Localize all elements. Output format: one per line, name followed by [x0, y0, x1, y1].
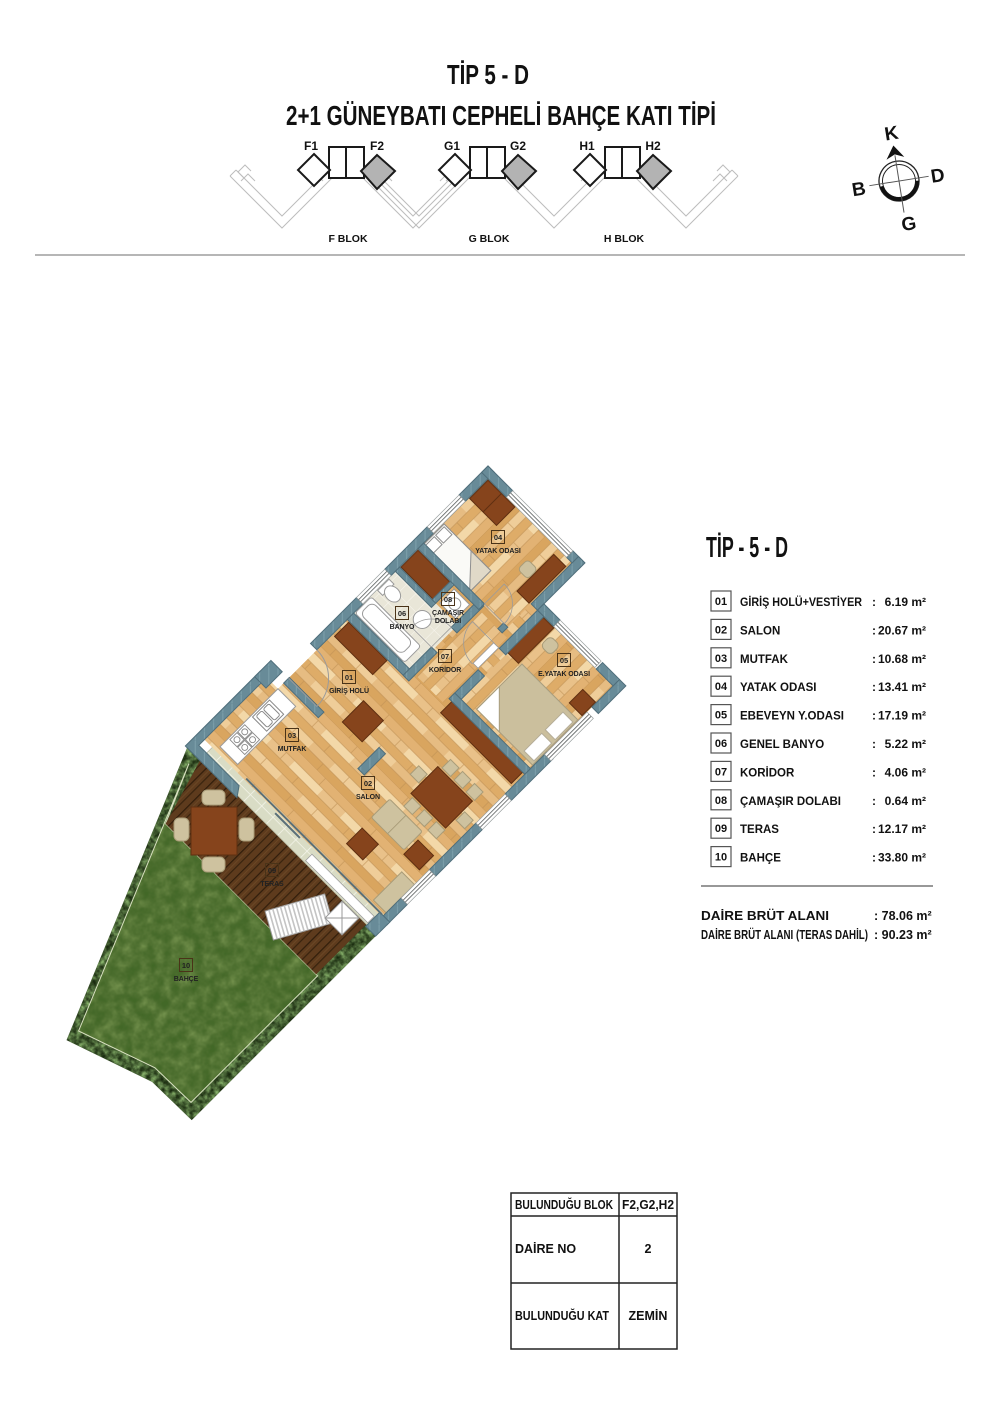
- svg-text::: :: [872, 822, 876, 836]
- svg-text:05: 05: [560, 656, 568, 665]
- svg-text:H2: H2: [645, 139, 661, 153]
- svg-text:08: 08: [715, 795, 727, 807]
- svg-text:SALON: SALON: [356, 794, 380, 801]
- svg-text::: :: [872, 765, 876, 779]
- svg-text:TİP 5 - D: TİP 5 - D: [447, 59, 529, 90]
- svg-text::: :: [872, 737, 876, 751]
- svg-text::: :: [872, 709, 876, 723]
- svg-text:MUTFAK: MUTFAK: [740, 654, 789, 666]
- svg-text:GİRİŞ HOLÜ: GİRİŞ HOLÜ: [329, 686, 369, 695]
- svg-text:6.19 m²: 6.19 m²: [885, 595, 926, 609]
- svg-text:4.06 m²: 4.06 m²: [885, 765, 926, 779]
- svg-text:DAİRE BRÜT ALANI: DAİRE BRÜT ALANI: [701, 908, 829, 923]
- svg-text:BAHÇE: BAHÇE: [740, 853, 781, 865]
- svg-text:: 78.06 m²: : 78.06 m²: [874, 909, 932, 923]
- svg-text:KORİDOR: KORİDOR: [740, 766, 795, 779]
- svg-text:DOLABI: DOLABI: [435, 618, 461, 625]
- svg-text:02: 02: [715, 624, 727, 636]
- svg-text::: :: [872, 851, 876, 865]
- svg-text:G BLOK: G BLOK: [469, 233, 510, 245]
- svg-text:01: 01: [345, 673, 353, 682]
- svg-text:04: 04: [715, 681, 728, 693]
- svg-text:BAHÇE: BAHÇE: [174, 976, 199, 983]
- svg-text:20.67 m²: 20.67 m²: [878, 623, 926, 637]
- svg-text:G1: G1: [444, 139, 460, 153]
- svg-text:2: 2: [645, 1242, 652, 1256]
- svg-text:01: 01: [715, 596, 727, 608]
- svg-text:07: 07: [715, 766, 727, 778]
- svg-text:08: 08: [444, 595, 452, 604]
- svg-text::: :: [872, 652, 876, 666]
- svg-text:TERAS: TERAS: [260, 881, 284, 888]
- svg-text::: :: [872, 794, 876, 808]
- svg-text:09: 09: [268, 866, 276, 875]
- svg-text:DAİRE BRÜT ALANI (TERAS DAHİL): DAİRE BRÜT ALANI (TERAS DAHİL): [701, 927, 868, 942]
- svg-text::: :: [872, 623, 876, 637]
- svg-text:F2,G2,H2: F2,G2,H2: [622, 1198, 674, 1212]
- svg-text:02: 02: [364, 779, 372, 788]
- svg-text:12.17 m²: 12.17 m²: [878, 822, 926, 836]
- svg-text:BULUNDUĞU KAT: BULUNDUĞU KAT: [515, 1308, 609, 1323]
- svg-text:H1: H1: [579, 139, 595, 153]
- svg-text:ÇAMAŞIR: ÇAMAŞIR: [432, 610, 464, 617]
- svg-text:10: 10: [715, 852, 727, 864]
- svg-text:H BLOK: H BLOK: [604, 233, 645, 245]
- svg-text:33.80 m²: 33.80 m²: [878, 851, 926, 865]
- svg-text::: :: [872, 680, 876, 694]
- svg-text:GENEL BANYO: GENEL BANYO: [740, 739, 824, 751]
- svg-text:F1: F1: [304, 139, 318, 153]
- svg-text:07: 07: [441, 652, 449, 661]
- svg-text:17.19 m²: 17.19 m²: [878, 709, 926, 723]
- svg-text:06: 06: [398, 609, 406, 618]
- svg-text:G2: G2: [510, 139, 526, 153]
- svg-text:TERAS: TERAS: [740, 824, 779, 836]
- svg-text:ÇAMAŞIR DOLABI: ÇAMAŞIR DOLABI: [740, 796, 841, 808]
- svg-text:YATAK ODASI: YATAK ODASI: [475, 548, 521, 555]
- svg-text:10: 10: [182, 961, 190, 970]
- svg-text:13.41 m²: 13.41 m²: [878, 680, 926, 694]
- svg-text::: :: [872, 595, 876, 609]
- svg-text:03: 03: [288, 731, 296, 740]
- svg-text:ZEMİN: ZEMİN: [629, 1308, 668, 1323]
- svg-text:03: 03: [715, 653, 727, 665]
- svg-text:SALON: SALON: [740, 625, 780, 637]
- svg-text:YATAK ODASI: YATAK ODASI: [740, 682, 816, 694]
- svg-text:TİP - 5 - D: TİP - 5 - D: [706, 532, 788, 564]
- svg-text:BANYO: BANYO: [390, 624, 415, 631]
- svg-text:DAİRE NO: DAİRE NO: [515, 1241, 576, 1256]
- svg-text:10.68 m²: 10.68 m²: [878, 652, 926, 666]
- svg-text:BULUNDUĞU BLOK: BULUNDUĞU BLOK: [515, 1197, 613, 1212]
- svg-text:5.22 m²: 5.22 m²: [885, 737, 926, 751]
- svg-text:: 90.23 m²: : 90.23 m²: [874, 928, 932, 942]
- svg-text:09: 09: [715, 823, 727, 835]
- svg-text:2+1 GÜNEYBATI CEPHELİ BAHÇE KA: 2+1 GÜNEYBATI CEPHELİ BAHÇE KATI TİPİ: [286, 100, 716, 131]
- svg-text:F BLOK: F BLOK: [328, 233, 367, 245]
- svg-text:05: 05: [715, 710, 727, 722]
- svg-text:KORİDOR: KORİDOR: [429, 666, 461, 674]
- svg-text:0.64 m²: 0.64 m²: [885, 794, 926, 808]
- svg-text:MUTFAK: MUTFAK: [278, 746, 307, 753]
- svg-text:04: 04: [494, 533, 503, 542]
- svg-text:06: 06: [715, 738, 727, 750]
- svg-text:F2: F2: [370, 139, 384, 153]
- svg-text:E.YATAK ODASI: E.YATAK ODASI: [538, 671, 590, 678]
- svg-text:GİRİŞ HOLÜ+VESTİYER: GİRİŞ HOLÜ+VESTİYER: [740, 596, 863, 609]
- svg-text:EBEVEYN Y.ODASI: EBEVEYN Y.ODASI: [740, 711, 844, 723]
